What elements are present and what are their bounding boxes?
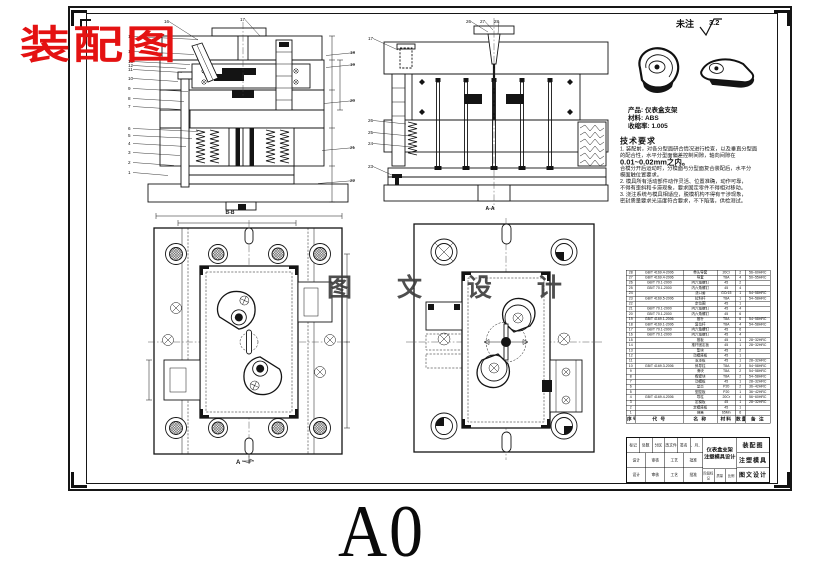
title-block-cell: 设计 <box>627 453 646 467</box>
title-block-cell: 更改文件号 <box>665 438 678 452</box>
section-label-aa: A-A <box>486 206 495 212</box>
bill-of-materials: 28GB/T 4169.4-2006带头导套20Cr256~60HRC27GB/… <box>626 270 770 577</box>
bom-row: 28GB/T 4169.4-2006带头导套20Cr256~60HRC <box>626 270 770 275</box>
title-block-cell: 工艺 <box>665 453 684 467</box>
callout-leader-line <box>373 39 398 51</box>
shrinkage-line: 收缩率: 1.005 <box>628 122 768 130</box>
plan-right-geometry <box>406 218 604 460</box>
corner-mark <box>774 10 790 26</box>
part-callout-number: 17 <box>240 17 246 22</box>
org-line2: 图文设计 <box>737 468 769 482</box>
plan-view-fixed-half <box>404 214 606 464</box>
part-callout-number: 25 <box>368 130 374 135</box>
bom-header-row: 序号代 号名 称材料数量备 注 <box>626 416 770 424</box>
isometric-part-views <box>620 42 770 108</box>
title-block-name-area: 装配图 注塑模具 图文设计 <box>737 438 769 482</box>
sheet-format-label: A0 <box>338 490 425 575</box>
part-callout-number: 21 <box>350 145 356 150</box>
title-block-cell: 工艺 <box>665 468 684 482</box>
bom-row: 4GB/T 4169.4-2006导柱20Cr456~60HRC <box>626 395 770 400</box>
title-block: 标记处数分区更改文件号签名年、月、日 设计审核工艺批准 设计审核工艺批准 仪表盒… <box>626 437 770 483</box>
part-callout-number: 28 <box>494 19 500 24</box>
part-callout-number: 2 <box>128 160 131 165</box>
roughness-symbol-icon: 3.2 <box>698 17 724 37</box>
part-callout-number: 23 <box>368 164 374 169</box>
title-block-cell: 处数 <box>640 438 653 452</box>
callout-leader-line <box>133 107 180 110</box>
plan-left-geometry <box>146 213 350 464</box>
title-block-cell: 签名 <box>678 438 691 452</box>
red-stamp-title: 装配图 <box>20 14 179 70</box>
org-line1: 注塑模具 <box>737 453 769 468</box>
part-callout-number: 20 <box>350 98 356 103</box>
section-arrow-label: A <box>236 460 241 466</box>
bom-row: 23GB/T 4169.5-2006拉料杆T8A154~58HRC <box>626 296 770 301</box>
part-callout-number: 3 <box>128 150 131 155</box>
title-block-cell: 批准 <box>684 453 703 467</box>
bom-row: 19GB/T 4169.1-2006推杆T8A654~58HRC <box>626 317 770 322</box>
callouts-top: 262728 <box>466 19 500 34</box>
title-block-cell: 年、月、日 <box>690 438 702 452</box>
surface-roughness-note: 未注 3.2 <box>676 17 724 37</box>
section-view-a-a: 262728 1726252423 A-A <box>366 16 622 212</box>
part-callout-number: 7 <box>128 104 131 109</box>
title-block-cell: 设计 <box>627 468 646 482</box>
title-block-cell: 比例 <box>726 469 737 482</box>
callout-leader-line <box>133 79 178 82</box>
title-block-project-area: 仪表盒支架 注塑模具设计 阶段标记质量比例 <box>703 438 737 482</box>
surface-note-prefix: 未注 <box>676 17 694 30</box>
bom-table: 28GB/T 4169.4-2006带头导套20Cr256~60HRC27GB/… <box>626 270 771 423</box>
title-block-revision-area: 标记处数分区更改文件号签名年、月、日 设计审核工艺批准 设计审核工艺批准 <box>627 438 703 482</box>
part-callout-number: 22 <box>350 178 356 183</box>
title-block-cell: 标记 <box>627 438 640 452</box>
part-callout-number: 4 <box>128 141 131 146</box>
drawing-canvas: 装配图 <box>0 0 820 580</box>
iso-part-left <box>639 48 678 93</box>
title-block-cell: 质量 <box>714 469 725 482</box>
bom-row: 18GB/T 4169.1-2006复位杆T8A454~58HRC <box>626 322 770 327</box>
part-callout-number: 8 <box>128 96 131 101</box>
corner-mark <box>71 472 87 488</box>
callout-leader-line <box>133 153 180 156</box>
tech-req-title: 技术要求 <box>620 138 774 145</box>
project-name-line1: 仪表盒支架 <box>707 446 733 453</box>
title-block-cell: 审核 <box>646 453 665 467</box>
part-callout-number: 5 <box>128 133 131 138</box>
title-block-cell: 阶段标记 <box>703 469 714 482</box>
callout-leader-line <box>133 173 168 176</box>
tech-req-line: 密封质量要求光洁度符合要求，不下陷落，供检测试。 <box>620 198 774 205</box>
title-block-cell: 分区 <box>652 438 665 452</box>
title-block-cell: 批准 <box>684 468 703 482</box>
drawing-name: 装配图 <box>737 438 769 453</box>
callout-leader-line <box>133 99 184 102</box>
part-callout-number: 9 <box>128 86 131 91</box>
plan-view-moving-half: A <box>146 212 352 466</box>
bom-row: 27GB/T 4169.4-2006导套T8A450~55HRC <box>626 275 770 280</box>
part-callout-number: 19 <box>350 62 356 67</box>
part-callout-number: 26 <box>368 118 374 123</box>
bom-row: 10GB/T 4169.3-2006斜导柱T8A254~58HRC <box>626 364 770 369</box>
part-callout-number: 1 <box>128 170 131 175</box>
callout-leader-line <box>133 163 174 166</box>
part-callout-number: 17 <box>368 36 374 41</box>
callout-leader-line <box>133 144 186 147</box>
title-block-cell: 审核 <box>646 468 665 482</box>
watermark-text: 图 文 设 计 <box>327 268 581 304</box>
corner-mark <box>774 472 790 488</box>
product-line: 产品: 仪表盒支架 <box>628 106 768 114</box>
part-callout-number: 27 <box>480 19 486 24</box>
mold-section-aa-geometry <box>384 18 608 210</box>
part-callout-number: 6 <box>128 126 131 131</box>
material-line: 材料: ABS <box>628 114 768 122</box>
project-name-line2: 注塑模具设计 <box>704 453 736 460</box>
part-callout-number: 26 <box>466 19 472 24</box>
part-callout-number: 18 <box>350 50 356 55</box>
iso-part-right <box>700 56 757 91</box>
part-callout-number: 24 <box>368 141 374 146</box>
technical-requirements: 技术要求 1. 装配前，对各分型面研合情况进行检查，以及垂直分型面 的配合性，水… <box>620 138 774 271</box>
part-callout-number: 10 <box>128 76 134 81</box>
